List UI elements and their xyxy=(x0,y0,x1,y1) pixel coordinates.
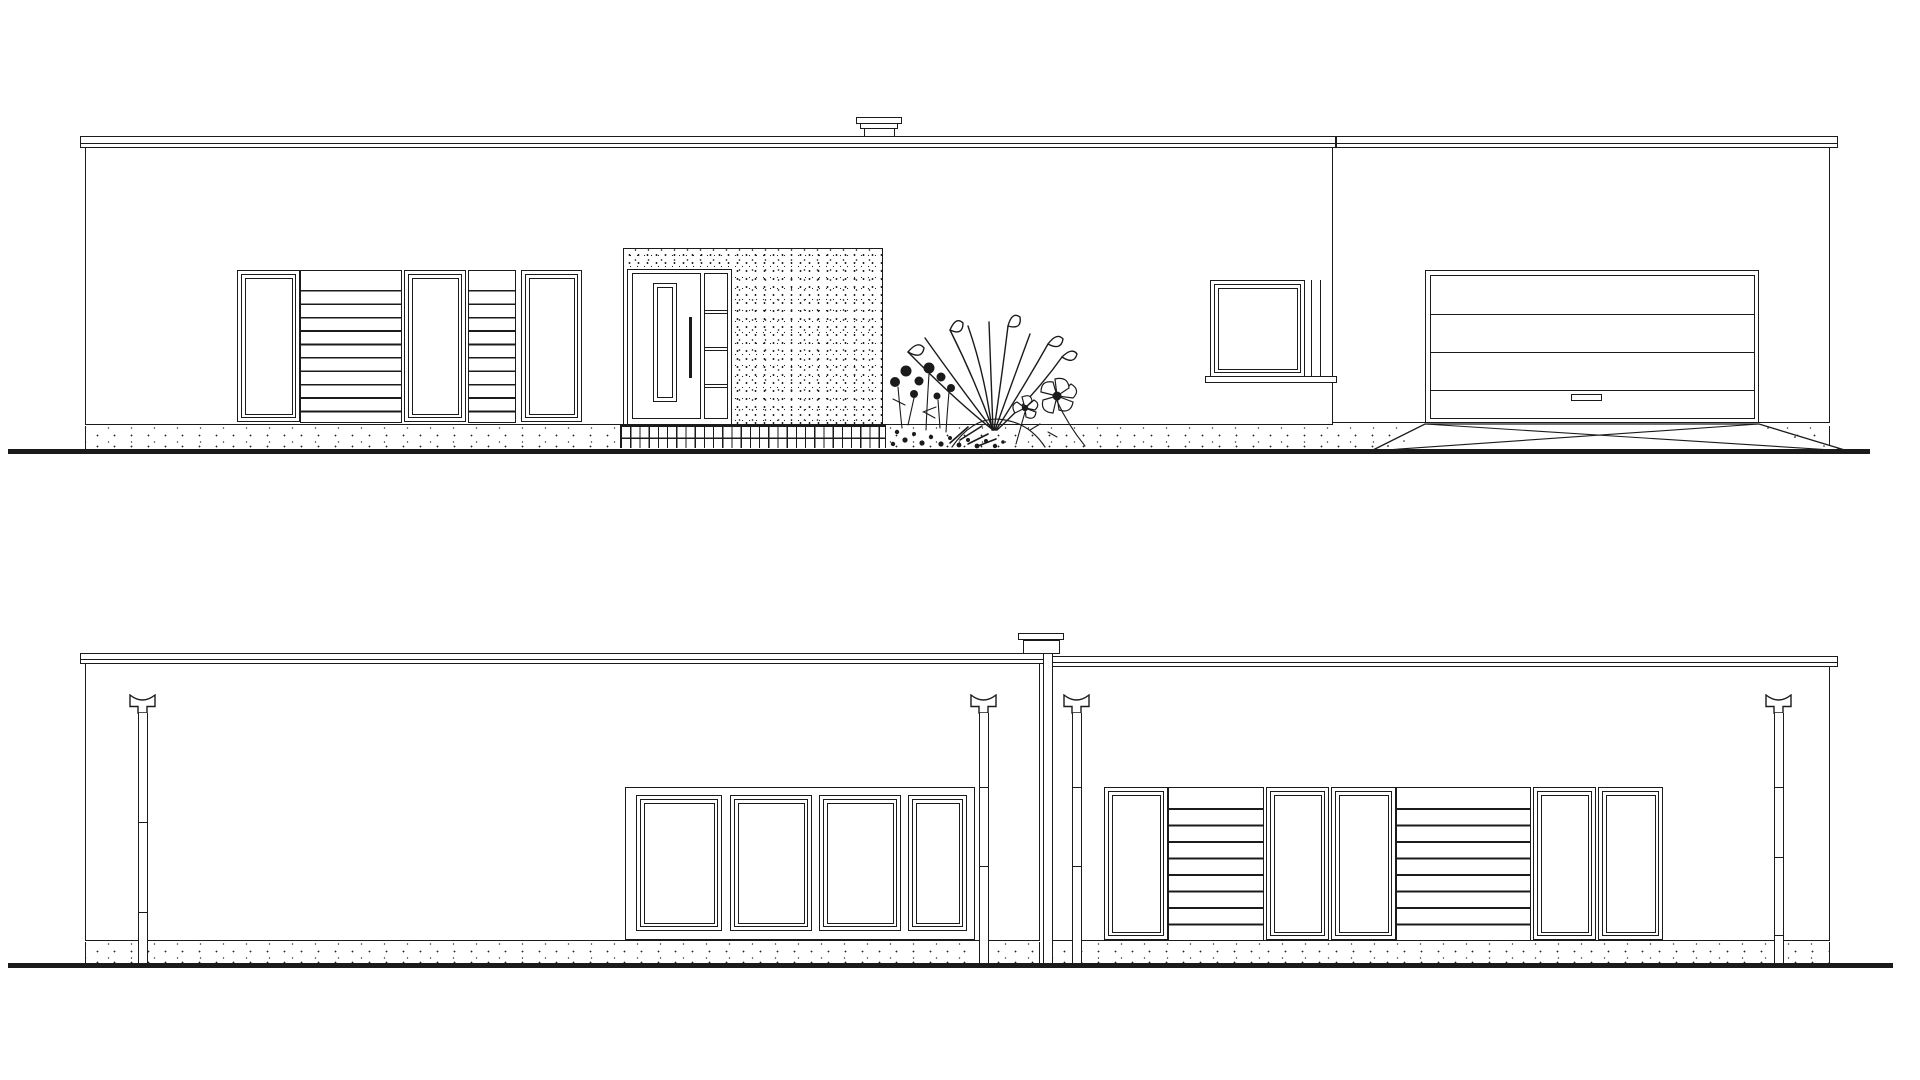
downspout-pipe xyxy=(1774,713,1784,963)
rear-ground-line xyxy=(8,963,1893,968)
downspout-pipe xyxy=(979,713,989,963)
downspout-pipe xyxy=(1072,713,1082,963)
elevation-drawing-sheet xyxy=(0,0,1920,1080)
downspout-funnel-icon xyxy=(970,694,997,714)
rear-downspouts xyxy=(0,0,1920,1080)
downspout-funnel-icon xyxy=(129,694,156,714)
downspout-funnel-icon xyxy=(1765,694,1792,714)
downspout-pipe xyxy=(138,713,148,963)
downspout-funnel-icon xyxy=(1063,694,1090,714)
